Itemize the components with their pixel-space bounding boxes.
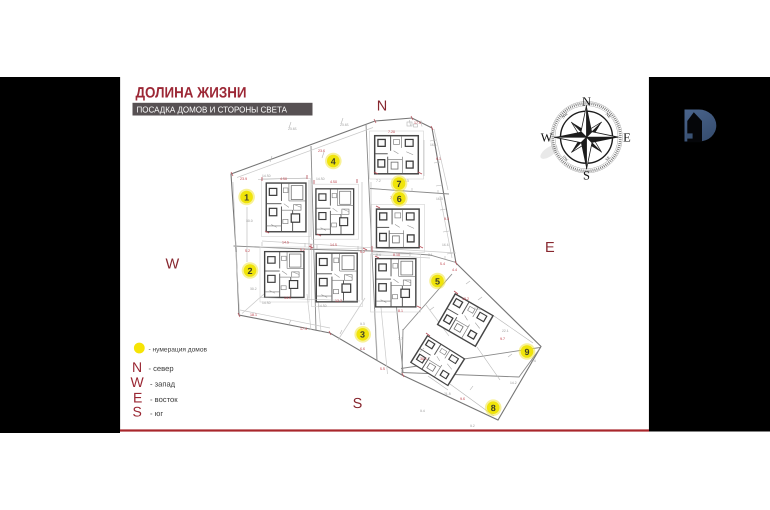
svg-text:N: N [132,359,142,375]
svg-text:7.20: 7.20 [388,130,395,134]
svg-text:1: 1 [244,192,249,202]
svg-text:16.3: 16.3 [436,197,443,201]
svg-text:14.50: 14.50 [318,304,327,308]
svg-text:22.4: 22.4 [474,307,481,311]
svg-text:3: 3 [360,330,365,340]
svg-text:W: W [131,374,145,390]
svg-text:- восток: - восток [150,395,178,404]
svg-text:E: E [623,131,631,145]
svg-text:5: 5 [435,276,440,286]
svg-text:7.2: 7.2 [376,179,381,183]
svg-text:14.5: 14.5 [282,241,289,245]
svg-text:14.5: 14.5 [284,296,291,300]
svg-text:9.3: 9.3 [444,217,449,221]
svg-text:6.1: 6.1 [436,157,441,161]
svg-text:ДОЛИНА ЖИЗНИ: ДОЛИНА ЖИЗНИ [136,84,247,101]
svg-text:W: W [541,131,553,145]
svg-text:N: N [377,98,387,114]
svg-text:- север: - север [149,364,174,373]
svg-text:4.50: 4.50 [330,180,337,184]
svg-text:23.6: 23.6 [318,149,325,153]
svg-text:18.1: 18.1 [250,313,257,317]
svg-text:3.1: 3.1 [428,253,433,257]
svg-text:S: S [353,396,363,412]
svg-text:30.0: 30.0 [246,219,253,223]
svg-text:2: 2 [247,266,252,276]
svg-text:W: W [165,256,179,272]
svg-text:- запад: - запад [150,380,176,389]
svg-text:9.3: 9.3 [360,322,365,326]
svg-text:14.2: 14.2 [510,381,517,385]
svg-text:17.5: 17.5 [414,121,421,125]
svg-text:9: 9 [524,347,529,357]
svg-text:30.2: 30.2 [250,287,257,291]
svg-text:14.50: 14.50 [262,301,271,305]
svg-text:14.5: 14.5 [330,243,337,247]
svg-text:23.9: 23.9 [240,177,247,181]
svg-text:5.2: 5.2 [300,248,305,252]
svg-text:8.1: 8.1 [398,309,403,313]
svg-text:9.6: 9.6 [460,397,465,401]
svg-text:21.8: 21.8 [444,392,451,396]
svg-text:14.50: 14.50 [316,177,325,181]
svg-text:17.4: 17.4 [300,327,307,331]
svg-text:- нумерация домов: - нумерация домов [149,346,208,353]
svg-text:S: S [583,169,590,183]
svg-text:E: E [545,240,555,256]
svg-text:5.2: 5.2 [360,250,365,254]
svg-text:8.10: 8.10 [393,253,400,257]
svg-text:4.50: 4.50 [280,177,287,181]
svg-text:14.50: 14.50 [262,174,271,178]
svg-text:7.7: 7.7 [398,337,403,341]
svg-text:S: S [133,404,142,420]
svg-text:N: N [582,95,591,109]
svg-text:16.6: 16.6 [442,243,449,247]
svg-text:23.65: 23.65 [340,123,349,127]
svg-text:5.2: 5.2 [245,249,250,253]
svg-text:16.1: 16.1 [430,143,437,147]
svg-text:9.2: 9.2 [470,424,475,428]
svg-text:12.2: 12.2 [335,299,342,303]
svg-text:9.4: 9.4 [420,409,425,413]
svg-text:- юг: - юг [150,409,163,418]
svg-text:6.6: 6.6 [360,347,365,351]
svg-text:30.1: 30.1 [420,357,427,361]
svg-text:8: 8 [491,403,496,413]
svg-text:6: 6 [397,194,402,204]
svg-text:ПОСАДКА ДОМОВ И СТОРОНЫ СВЕТА: ПОСАДКА ДОМОВ И СТОРОНЫ СВЕТА [137,105,288,115]
svg-text:5.5: 5.5 [380,367,385,371]
svg-text:4: 4 [331,156,336,166]
svg-text:10.2: 10.2 [462,297,469,301]
svg-text:5.4: 5.4 [440,262,445,266]
svg-text:23.65: 23.65 [288,127,297,131]
svg-text:4.4: 4.4 [531,359,536,363]
svg-text:4.4: 4.4 [452,268,457,272]
svg-text:9.7: 9.7 [500,337,505,341]
svg-text:22.1: 22.1 [502,329,509,333]
svg-text:8.4: 8.4 [376,253,381,257]
svg-text:7: 7 [396,179,401,189]
